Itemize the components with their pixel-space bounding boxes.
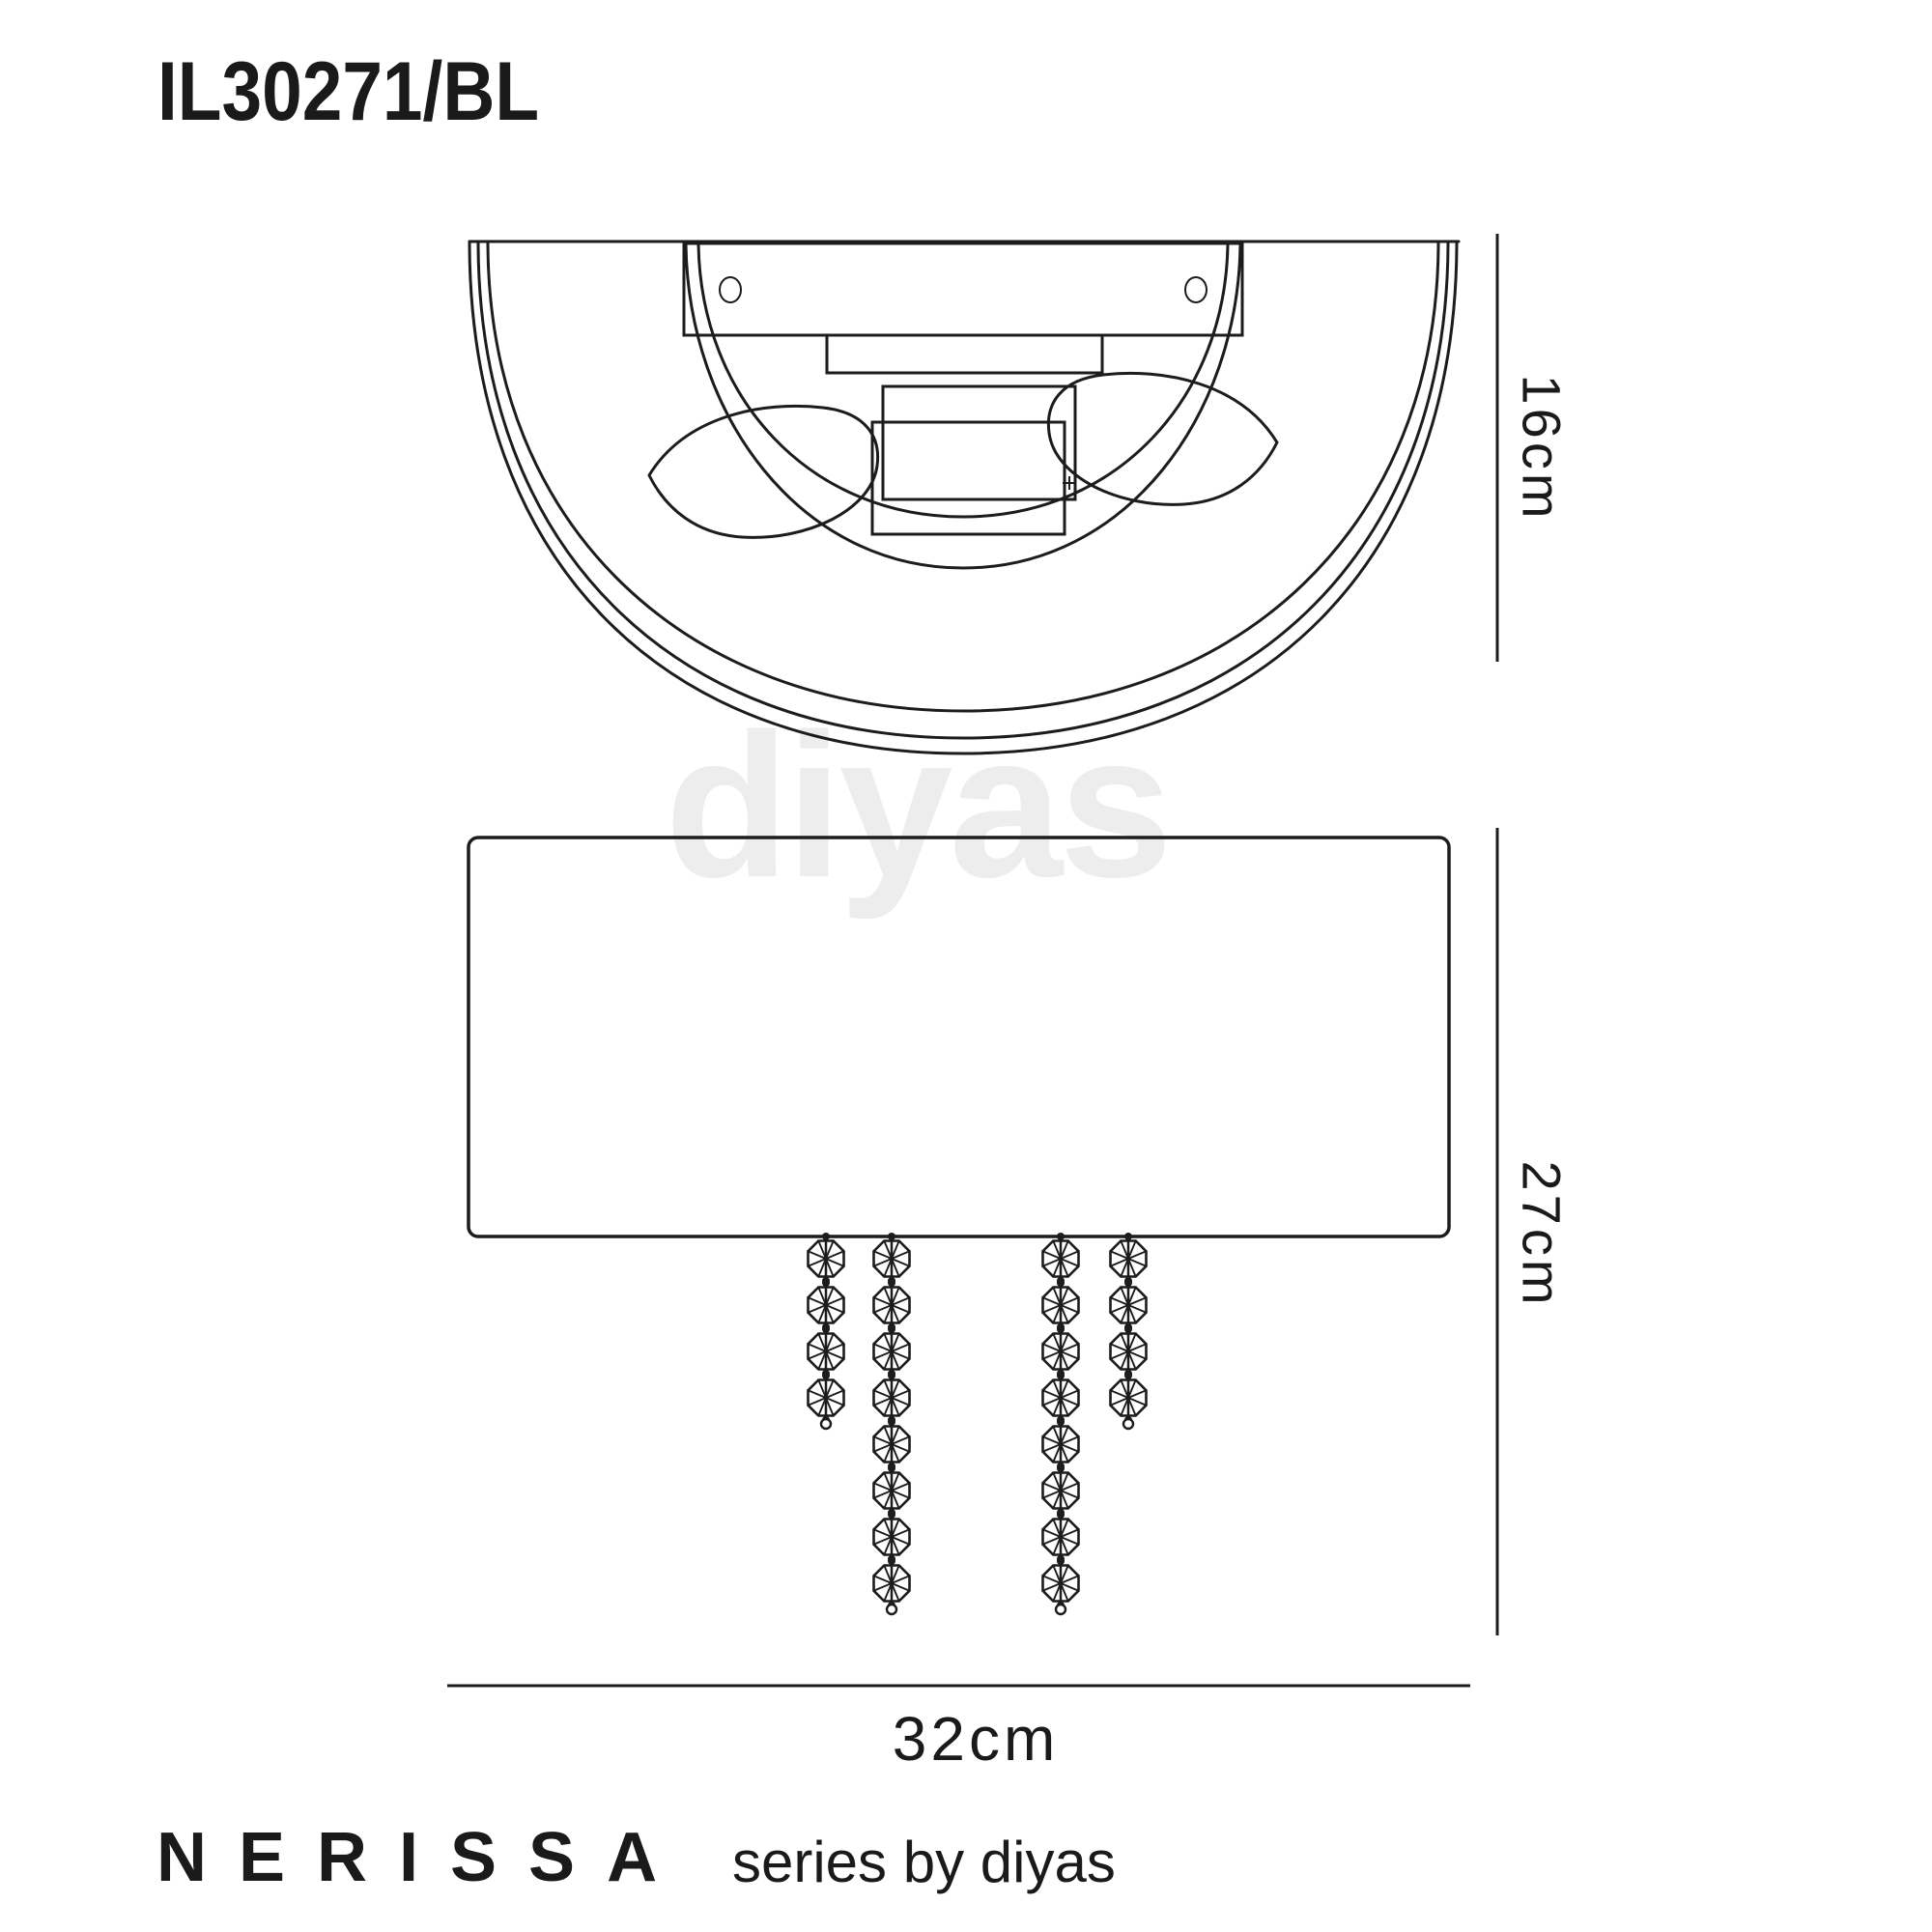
line-art xyxy=(0,0,1932,1932)
crystal-strand xyxy=(1043,1233,1079,1614)
bulb-right-icon xyxy=(1048,373,1277,504)
series-name: NERISSA xyxy=(156,1818,689,1897)
lamp-holder-box-back xyxy=(883,386,1075,499)
bracket-step-plate xyxy=(827,335,1102,373)
dim-label-27cm: 27cm xyxy=(1511,1161,1574,1309)
top-view-drawing xyxy=(469,241,1459,753)
dim-label-32cm: 32cm xyxy=(893,1703,1060,1775)
series-byline: series by diyas xyxy=(732,1829,1116,1895)
crystal-strand xyxy=(809,1233,844,1429)
strand-end-loop-icon xyxy=(821,1419,831,1429)
crystal-strand xyxy=(1111,1233,1147,1429)
crystal-strands xyxy=(809,1233,1147,1614)
screw-hole-right-icon xyxy=(1185,277,1207,302)
front-view-drawing xyxy=(469,838,1449,1614)
screw-hole-left-icon xyxy=(720,277,741,302)
strand-end-loop-icon xyxy=(1056,1605,1065,1614)
crystal-strand xyxy=(874,1233,910,1614)
dimension-lines xyxy=(447,234,1497,1686)
shade-inner-rim-inner xyxy=(698,243,1228,517)
product-dimension-diagram: diyas IL30271/BL xyxy=(0,0,1932,1932)
product-code: IL30271/BL xyxy=(157,44,539,140)
strand-end-loop-icon xyxy=(1123,1419,1133,1429)
shade-outer-rim-inner1 xyxy=(478,241,1448,738)
shade-outer-rim xyxy=(469,241,1457,753)
mounting-bracket xyxy=(684,243,1242,335)
strand-end-loop-icon xyxy=(887,1605,896,1614)
shade-inner-rim-outer xyxy=(686,243,1240,568)
dim-label-16cm: 16cm xyxy=(1511,375,1574,523)
shade-front-outline xyxy=(469,838,1449,1236)
